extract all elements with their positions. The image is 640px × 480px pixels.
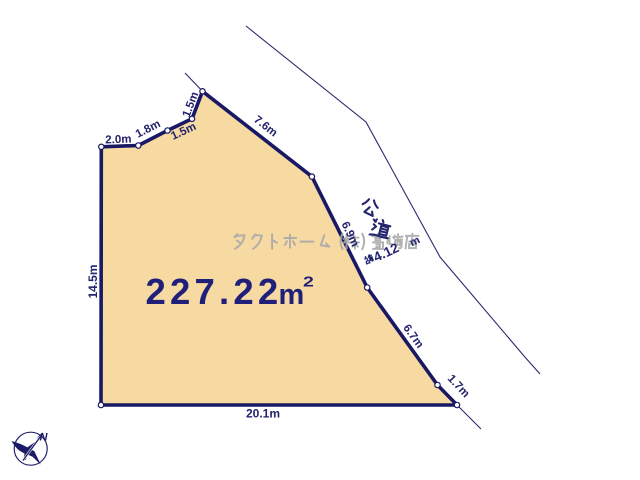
svg-text:227.22: 227.22 — [146, 271, 283, 312]
svg-text:2.0m: 2.0m — [105, 134, 132, 147]
svg-text:m: m — [408, 234, 422, 249]
svg-text:14.5m: 14.5m — [86, 264, 100, 298]
svg-text:m: m — [279, 279, 305, 311]
svg-text:20.1m: 20.1m — [246, 407, 280, 421]
svg-text:2: 2 — [303, 273, 314, 290]
svg-text:N: N — [40, 432, 49, 444]
